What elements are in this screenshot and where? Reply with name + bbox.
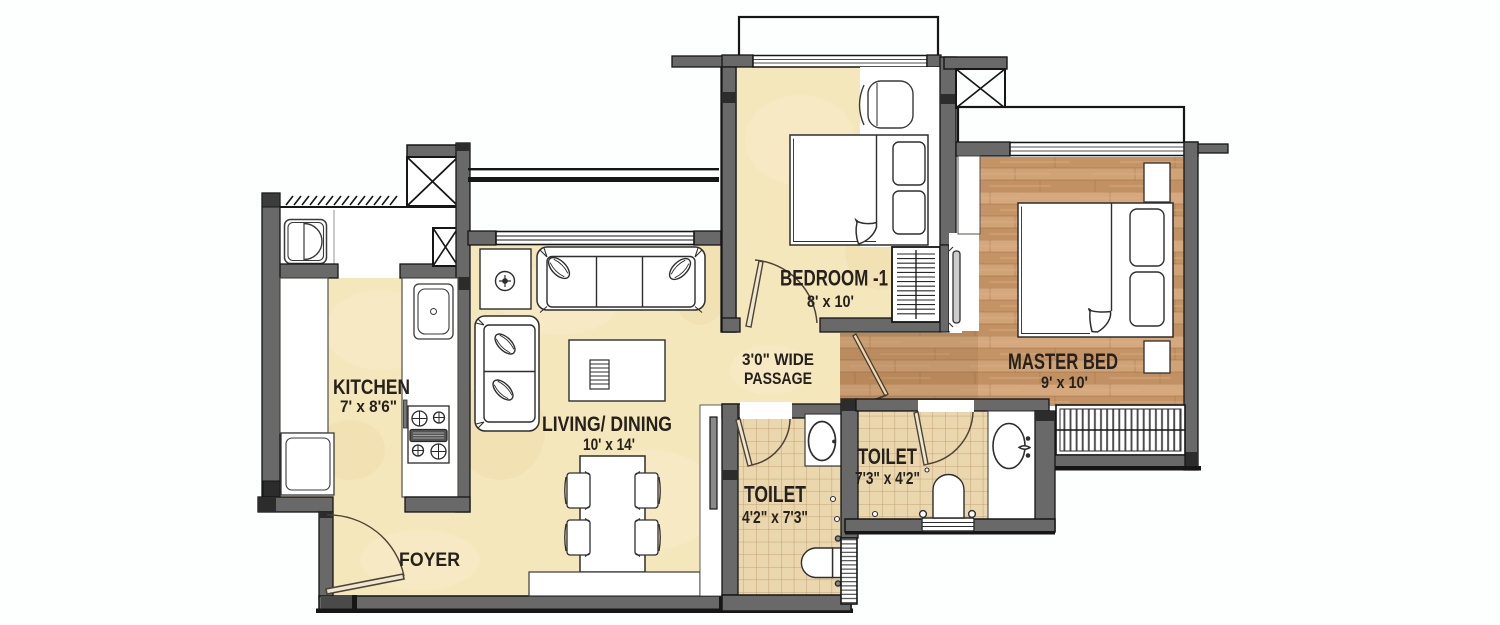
svg-text:MASTER BED: MASTER BED	[1008, 349, 1118, 374]
svg-text:PASSAGE: PASSAGE	[744, 369, 812, 388]
svg-text:7'3" x 4'2": 7'3" x 4'2"	[855, 468, 920, 488]
svg-text:9' x 10': 9' x 10'	[1041, 374, 1088, 392]
svg-text:KITCHEN: KITCHEN	[333, 375, 410, 399]
svg-text:4'2" x 7'3": 4'2" x 7'3"	[742, 507, 808, 527]
svg-text:BEDROOM -1: BEDROOM -1	[780, 266, 888, 291]
svg-text:7' x 8'6": 7' x 8'6"	[340, 397, 397, 416]
svg-text:10' x 14': 10' x 14'	[583, 435, 635, 454]
svg-text:TOILET: TOILET	[858, 444, 917, 469]
svg-text:8' x 10': 8' x 10'	[807, 292, 854, 311]
svg-text:TOILET: TOILET	[744, 481, 806, 507]
svg-text:LIVING/ DINING: LIVING/ DINING	[542, 412, 672, 436]
svg-text:FOYER: FOYER	[399, 549, 460, 571]
svg-text:3'0" WIDE: 3'0" WIDE	[742, 350, 814, 369]
